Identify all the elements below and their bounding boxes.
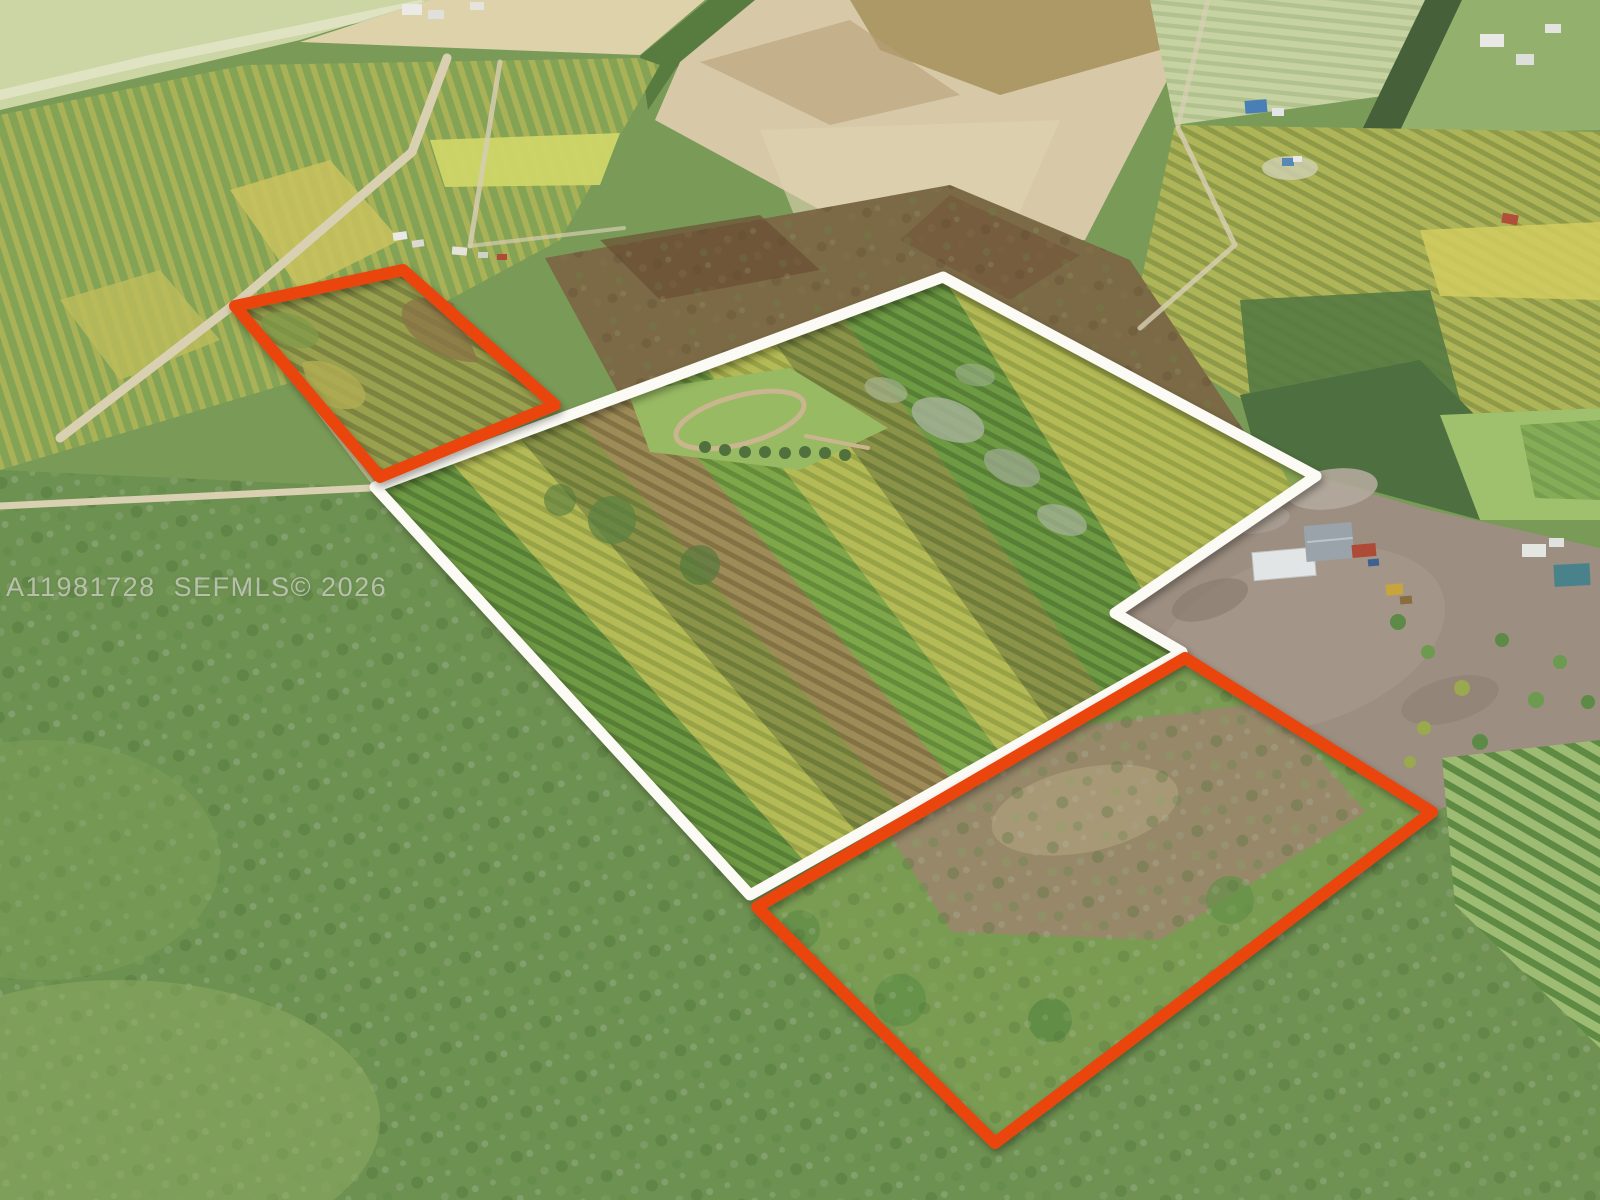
palm-on-dirt <box>1454 680 1470 696</box>
equipment-yellow <box>1386 583 1404 595</box>
greenhouse-blue-roof <box>1244 99 1267 114</box>
field-bright-block <box>430 133 620 187</box>
palm-row-dot <box>779 447 791 459</box>
mls-watermark: A11981728 SEFMLS© 2026 <box>6 572 387 603</box>
palm-row-dot <box>739 446 751 458</box>
yard-structure <box>1480 34 1504 47</box>
palm-row-dot <box>699 441 711 453</box>
equipment-red <box>1351 543 1376 558</box>
palm-on-dirt <box>1472 734 1488 750</box>
equipment-tan <box>1400 595 1413 604</box>
palm-on-dirt <box>1528 692 1544 708</box>
palm-on-dirt <box>1390 614 1406 630</box>
building-white-small <box>1272 108 1284 116</box>
tree-clump <box>544 484 576 516</box>
palm-on-dirt <box>1417 721 1431 735</box>
palm-on-dirt <box>1421 645 1435 659</box>
palm-row-dot <box>839 449 851 461</box>
aerial-photo-container: A11981728 SEFMLS© 2026 <box>0 0 1600 1200</box>
palm-row-dot <box>719 444 731 456</box>
palm-row-dot <box>819 447 831 459</box>
tree-clump <box>588 496 636 544</box>
palm-row-dot <box>799 446 811 458</box>
tractor-field-cab <box>1293 156 1302 162</box>
house-white-right <box>1549 538 1564 547</box>
tree-clump <box>680 545 720 585</box>
palm-row-dot <box>759 446 771 458</box>
palm-on-dirt <box>1495 633 1509 647</box>
vehicle-white <box>452 246 468 255</box>
structure-top <box>470 2 484 10</box>
structure-top <box>428 10 444 19</box>
structure-top <box>402 4 422 15</box>
vehicle-red <box>497 254 507 260</box>
palm-on-dirt <box>1553 655 1567 669</box>
nursery-yellow-block-right <box>1420 222 1600 300</box>
equipment-blue <box>1368 559 1380 567</box>
palm-on-dirt <box>1404 756 1416 768</box>
vehicle-gray <box>478 252 488 258</box>
house-teal-roof <box>1553 563 1590 587</box>
yard-structure <box>1545 24 1561 33</box>
palm-on-dirt <box>1581 695 1595 709</box>
house-white-right <box>1522 544 1546 557</box>
yard-structure <box>1516 54 1534 65</box>
tractor-field <box>1282 158 1294 166</box>
